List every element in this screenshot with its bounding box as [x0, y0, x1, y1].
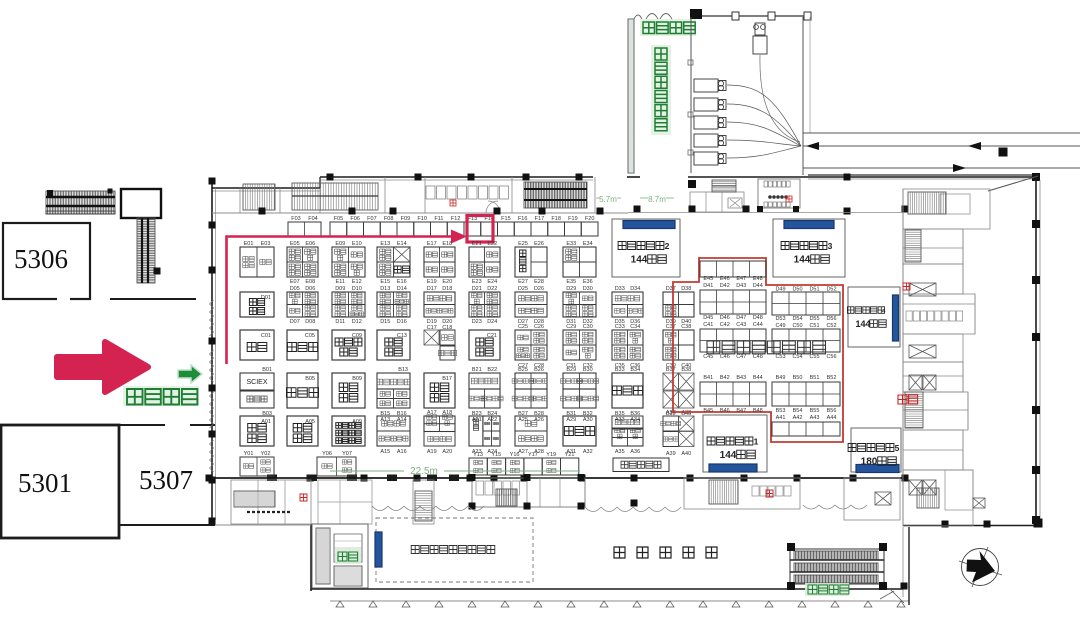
svg-text:C55: C55 [809, 354, 819, 360]
svg-text:E18: E18 [442, 241, 452, 247]
svg-text:1: 1 [754, 437, 759, 447]
svg-text:C53: C53 [775, 354, 785, 360]
svg-text:B33: B33 [615, 367, 625, 373]
svg-text:C43: C43 [736, 322, 746, 328]
svg-text:D21: D21 [472, 286, 482, 292]
svg-text:B47: B47 [736, 408, 746, 414]
svg-text:D08: D08 [305, 319, 315, 325]
svg-text:D37: D37 [666, 286, 676, 292]
svg-text:F11: F11 [434, 216, 443, 222]
svg-text:C30: C30 [583, 324, 593, 330]
svg-text:C05: C05 [305, 333, 315, 339]
svg-text:B37: B37 [666, 367, 676, 373]
svg-text:5.7m: 5.7m [599, 195, 617, 204]
svg-text:B46: B46 [720, 408, 730, 414]
svg-text:F16: F16 [518, 216, 527, 222]
svg-text:E33: E33 [566, 241, 576, 247]
svg-text:A15: A15 [380, 449, 390, 455]
svg-text:C56: C56 [826, 354, 836, 360]
svg-text:B56: B56 [827, 408, 837, 414]
svg-text:F03: F03 [291, 216, 300, 222]
svg-text:D05: D05 [290, 286, 300, 292]
svg-text:B22: B22 [487, 367, 497, 373]
svg-text:F19: F19 [568, 216, 577, 222]
svg-text:D53: D53 [775, 316, 785, 322]
svg-text:144: 144 [631, 255, 648, 266]
svg-text:E35: E35 [566, 279, 576, 285]
svg-text:B01: B01 [262, 367, 272, 373]
svg-text:A39: A39 [666, 451, 676, 457]
svg-text:Y01: Y01 [244, 451, 254, 457]
svg-text:A18: A18 [442, 410, 452, 416]
svg-text:A26: A26 [534, 417, 544, 423]
svg-text:Y02: Y02 [261, 451, 271, 457]
svg-text:C01: C01 [261, 333, 271, 339]
svg-text:A05: A05 [305, 419, 315, 425]
svg-text:D24: D24 [487, 319, 497, 325]
svg-text:E05: E05 [290, 241, 300, 247]
svg-text:A20: A20 [442, 449, 452, 455]
svg-text:5: 5 [895, 443, 900, 453]
svg-text:2: 2 [665, 241, 670, 251]
svg-text:E46: E46 [720, 276, 730, 282]
svg-text:C51: C51 [809, 323, 819, 329]
svg-text:144: 144 [855, 319, 870, 329]
svg-text:D33: D33 [615, 286, 625, 292]
svg-text:E45: E45 [703, 276, 713, 282]
svg-text:F08: F08 [384, 216, 393, 222]
svg-text:A16: A16 [397, 449, 407, 455]
svg-text:E14: E14 [397, 241, 407, 247]
svg-text:Y13: Y13 [473, 452, 483, 458]
svg-text:D25: D25 [518, 286, 528, 292]
svg-text:E28: E28 [534, 279, 544, 285]
svg-text:B05: B05 [305, 376, 315, 382]
svg-text:D06: D06 [305, 286, 315, 292]
svg-text:A17: A17 [427, 410, 437, 416]
svg-text:F15: F15 [501, 216, 510, 222]
svg-text:D42: D42 [720, 283, 730, 289]
svg-text:A36: A36 [630, 449, 640, 455]
svg-text:B17: B17 [442, 376, 452, 382]
svg-text:A27: A27 [518, 449, 528, 455]
svg-text:A35: A35 [615, 449, 625, 455]
svg-text:D29: D29 [566, 286, 576, 292]
svg-text:D18: D18 [442, 286, 452, 292]
svg-text:D30: D30 [583, 286, 593, 292]
svg-text:D43: D43 [736, 283, 746, 289]
svg-text:D16: D16 [397, 319, 407, 325]
svg-text:D41: D41 [703, 283, 713, 289]
svg-text:D07: D07 [290, 319, 300, 325]
svg-text:Y19: Y19 [546, 452, 556, 458]
svg-text:C52: C52 [826, 323, 836, 329]
svg-text:E34: E34 [583, 241, 593, 247]
svg-text:E23: E23 [472, 279, 482, 285]
svg-text:D13: D13 [380, 286, 390, 292]
svg-text:B13: B13 [398, 367, 408, 373]
svg-text:B51: B51 [810, 375, 820, 381]
svg-text:C45: C45 [703, 354, 713, 360]
svg-text:B43: B43 [736, 375, 746, 381]
svg-text:F05: F05 [334, 216, 343, 222]
svg-text:C26: C26 [534, 324, 544, 330]
svg-text:C54: C54 [792, 354, 802, 360]
svg-text:A41: A41 [776, 415, 786, 421]
svg-text:D47: D47 [736, 315, 746, 321]
svg-text:D11: D11 [335, 319, 345, 325]
svg-text:C47: C47 [736, 354, 746, 360]
svg-text:D15: D15 [380, 319, 390, 325]
svg-text:C25: C25 [518, 324, 528, 330]
svg-text:B30: B30 [583, 367, 593, 373]
svg-text:E15: E15 [380, 279, 390, 285]
svg-text:E16: E16 [397, 279, 407, 285]
svg-text:22.5m: 22.5m [410, 466, 438, 477]
svg-text:D10: D10 [352, 286, 362, 292]
svg-text:D55: D55 [809, 316, 819, 322]
svg-text:B42: B42 [720, 375, 730, 381]
svg-text:C34: C34 [630, 324, 640, 330]
svg-text:B55: B55 [810, 408, 820, 414]
svg-text:C50: C50 [792, 323, 802, 329]
svg-text:5306: 5306 [14, 244, 68, 274]
svg-text:A19: A19 [427, 449, 437, 455]
svg-text:8.7m: 8.7m [648, 195, 666, 204]
svg-text:E08: E08 [305, 279, 315, 285]
svg-text:F04: F04 [308, 216, 317, 222]
svg-text:D14: D14 [397, 286, 407, 292]
svg-text:Y21: Y21 [565, 452, 575, 458]
svg-text:144: 144 [794, 255, 811, 266]
svg-text:C46: C46 [720, 354, 730, 360]
svg-text:B25: B25 [518, 367, 528, 373]
svg-text:E19: E19 [427, 279, 437, 285]
svg-text:Y06: Y06 [322, 451, 332, 457]
svg-text:E11: E11 [336, 279, 345, 285]
svg-text:C42: C42 [720, 322, 730, 328]
svg-text:B38: B38 [681, 367, 691, 373]
svg-text:E12: E12 [352, 279, 362, 285]
svg-text:D38: D38 [681, 286, 691, 292]
svg-text:D17: D17 [427, 286, 437, 292]
svg-text:D26: D26 [534, 286, 544, 292]
svg-text:E36: E36 [583, 279, 593, 285]
svg-text:Y07: Y07 [342, 451, 352, 457]
svg-text:E06: E06 [305, 241, 315, 247]
svg-text:A25: A25 [518, 417, 528, 423]
svg-text:B48: B48 [753, 408, 763, 414]
svg-text:A37: A37 [666, 410, 676, 416]
svg-text:D44: D44 [753, 283, 763, 289]
svg-text:B44: B44 [753, 375, 763, 381]
svg-text:D34: D34 [630, 286, 640, 292]
svg-text:C44: C44 [753, 322, 763, 328]
svg-text:144: 144 [720, 450, 737, 461]
svg-text:B41: B41 [703, 375, 713, 381]
svg-text:B34: B34 [630, 367, 640, 373]
svg-text:C38: C38 [681, 324, 691, 330]
svg-text:E26: E26 [534, 241, 544, 247]
svg-text:C29: C29 [566, 324, 576, 330]
svg-text:B53: B53 [776, 408, 786, 414]
svg-text:A29: A29 [566, 417, 576, 423]
svg-text:E25: E25 [518, 241, 528, 247]
svg-text:3: 3 [828, 241, 833, 251]
svg-text:A30: A30 [583, 417, 593, 423]
svg-text:D23: D23 [472, 319, 482, 325]
svg-text:Y17: Y17 [528, 452, 538, 458]
svg-text:E17: E17 [427, 241, 437, 247]
svg-text:F20: F20 [585, 216, 594, 222]
svg-text:Y16: Y16 [510, 452, 520, 458]
svg-text:E03: E03 [261, 241, 271, 247]
svg-text:E09: E09 [335, 241, 345, 247]
svg-text:A43: A43 [810, 415, 820, 421]
svg-text:SCIEX: SCIEX [246, 379, 267, 386]
svg-text:B49: B49 [776, 375, 786, 381]
svg-text:E47: E47 [736, 276, 746, 282]
svg-text:F12: F12 [451, 216, 460, 222]
svg-text:D09: D09 [335, 286, 345, 292]
svg-text:B21: B21 [472, 367, 482, 373]
svg-text:A38: A38 [681, 410, 691, 416]
svg-text:D48: D48 [753, 315, 763, 321]
svg-text:D56: D56 [826, 316, 836, 322]
svg-text:D46: D46 [720, 315, 730, 321]
svg-text:4: 4 [882, 308, 886, 315]
svg-text:E24: E24 [487, 279, 497, 285]
svg-text:B45: B45 [703, 408, 713, 414]
svg-text:C33: C33 [615, 324, 625, 330]
svg-text:E01: E01 [244, 241, 254, 247]
svg-text:B50: B50 [793, 375, 803, 381]
svg-text:Y15: Y15 [491, 452, 501, 458]
svg-text:E21: E21 [472, 241, 482, 247]
svg-text:D12: D12 [352, 319, 362, 325]
svg-text:5301: 5301 [18, 468, 72, 498]
svg-text:D45: D45 [703, 315, 713, 321]
svg-text:F17: F17 [535, 216, 544, 222]
svg-text:E22: E22 [487, 241, 497, 247]
svg-text:A44: A44 [827, 415, 837, 421]
svg-text:5307: 5307 [139, 465, 193, 495]
svg-text:A32: A32 [583, 449, 593, 455]
svg-text:E20: E20 [442, 279, 452, 285]
svg-text:180: 180 [861, 457, 878, 468]
svg-text:C41: C41 [703, 322, 713, 328]
svg-text:E27: E27 [518, 279, 528, 285]
svg-text:B09: B09 [352, 376, 362, 382]
svg-text:C48: C48 [753, 354, 763, 360]
svg-text:B52: B52 [827, 375, 837, 381]
svg-text:D54: D54 [792, 316, 802, 322]
svg-text:B26: B26 [534, 367, 544, 373]
svg-text:B29: B29 [566, 367, 576, 373]
svg-text:D22: D22 [487, 286, 497, 292]
svg-text:F10: F10 [417, 216, 426, 222]
svg-text:F07: F07 [367, 216, 376, 222]
svg-text:C49: C49 [775, 323, 785, 329]
svg-text:A42: A42 [793, 415, 803, 421]
svg-text:B54: B54 [793, 408, 803, 414]
svg-text:F06: F06 [350, 216, 359, 222]
svg-text:F09: F09 [401, 216, 410, 222]
svg-text:E07: E07 [290, 279, 300, 285]
svg-text:E13: E13 [380, 241, 390, 247]
svg-text:A40: A40 [681, 451, 691, 457]
svg-text:E48: E48 [753, 276, 763, 282]
svg-text:E10: E10 [352, 241, 362, 247]
svg-text:C37: C37 [666, 324, 676, 330]
svg-text:F18: F18 [551, 216, 560, 222]
